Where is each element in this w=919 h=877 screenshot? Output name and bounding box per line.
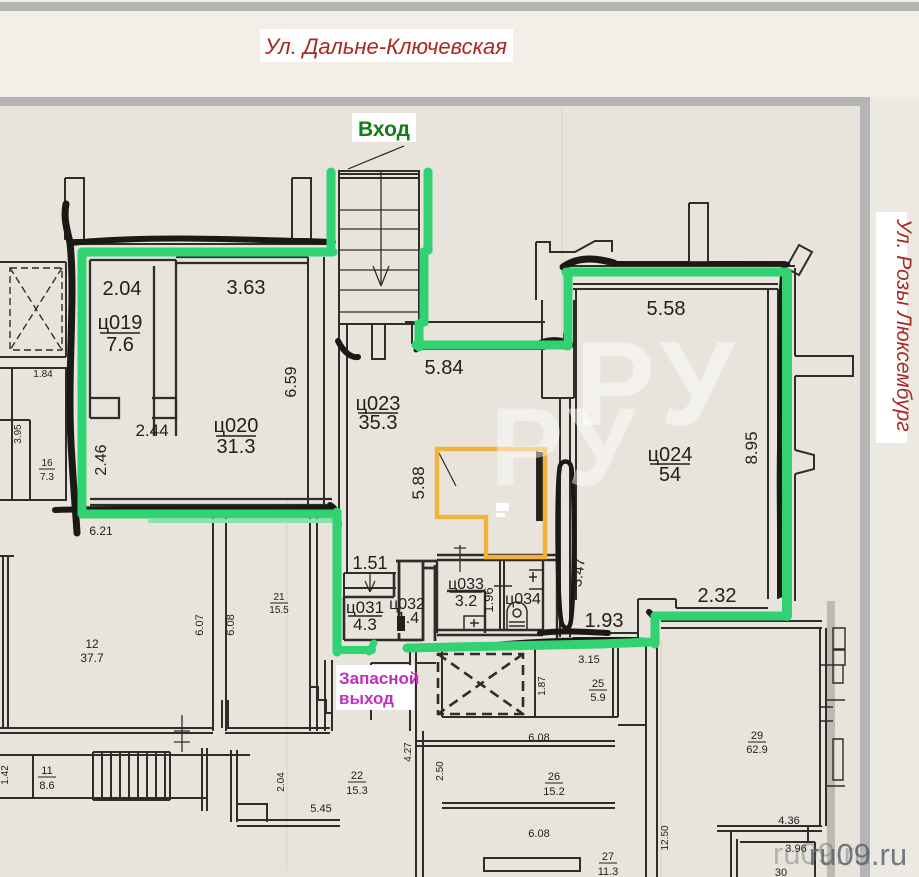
svg-text:27: 27 bbox=[602, 851, 614, 863]
svg-text:2.46: 2.46 bbox=[93, 444, 110, 475]
svg-text:2.50: 2.50 bbox=[435, 761, 446, 781]
svg-text:ц024: ц024 bbox=[648, 444, 693, 466]
svg-text:выход: выход bbox=[339, 689, 394, 708]
svg-text:8.95: 8.95 bbox=[742, 431, 761, 464]
svg-text:21: 21 bbox=[273, 592, 285, 603]
svg-text:15.2: 15.2 bbox=[543, 786, 564, 798]
svg-text:3.95: 3.95 bbox=[13, 424, 24, 444]
svg-text:7.3: 7.3 bbox=[40, 472, 54, 483]
svg-text:31.3: 31.3 bbox=[217, 436, 256, 458]
svg-text:11.3: 11.3 bbox=[598, 866, 619, 877]
svg-text:5.45: 5.45 bbox=[310, 803, 331, 815]
svg-text:1.96: 1.96 bbox=[481, 587, 496, 612]
svg-text:5.84: 5.84 bbox=[425, 357, 464, 379]
svg-text:7.6: 7.6 bbox=[106, 334, 134, 356]
svg-text:1.4: 1.4 bbox=[397, 610, 419, 627]
svg-text:6.59: 6.59 bbox=[283, 366, 300, 397]
svg-text:5.58: 5.58 bbox=[647, 298, 686, 320]
svg-text:54: 54 bbox=[659, 464, 681, 486]
svg-text:ru09.ru: ru09.ru bbox=[773, 836, 871, 871]
svg-text:15.3: 15.3 bbox=[346, 785, 367, 797]
svg-text:Ул. Дальне-Ключевская: Ул. Дальне-Ключевская bbox=[264, 34, 507, 59]
svg-text:5.9: 5.9 bbox=[590, 692, 605, 704]
svg-text:3.2: 3.2 bbox=[455, 593, 477, 610]
svg-text:15.5: 15.5 bbox=[269, 605, 289, 616]
svg-text:22: 22 bbox=[351, 770, 363, 782]
svg-text:12: 12 bbox=[85, 637, 99, 651]
svg-text:1.84: 1.84 bbox=[33, 369, 53, 380]
svg-text:2.32: 2.32 bbox=[698, 585, 737, 607]
svg-text:4.3: 4.3 bbox=[353, 615, 377, 634]
svg-text:37.7: 37.7 bbox=[80, 651, 104, 665]
svg-text:ц020: ц020 bbox=[214, 415, 259, 437]
svg-text:ц033: ц033 bbox=[448, 576, 484, 593]
svg-text:62.9: 62.9 bbox=[746, 744, 767, 756]
svg-text:4.36: 4.36 bbox=[778, 815, 799, 827]
svg-text:1.42: 1.42 bbox=[0, 765, 11, 785]
svg-text:6.08: 6.08 bbox=[528, 828, 549, 840]
svg-text:12.50: 12.50 bbox=[660, 825, 671, 850]
svg-text:2.04: 2.04 bbox=[103, 278, 142, 300]
svg-text:Вход: Вход bbox=[358, 118, 410, 141]
svg-text:8.6: 8.6 bbox=[39, 780, 54, 792]
svg-text:29: 29 bbox=[751, 730, 763, 742]
svg-text:16: 16 bbox=[41, 458, 53, 469]
svg-text:6.21: 6.21 bbox=[89, 524, 113, 538]
svg-text:4.27: 4.27 bbox=[403, 742, 414, 762]
svg-text:6.08: 6.08 bbox=[225, 614, 237, 635]
svg-text:26: 26 bbox=[548, 771, 560, 783]
svg-text:6.08: 6.08 bbox=[528, 732, 549, 744]
svg-text:6.07: 6.07 bbox=[194, 614, 206, 635]
svg-text:1.87: 1.87 bbox=[537, 676, 548, 696]
svg-text:Запасной: Запасной bbox=[339, 669, 419, 688]
svg-text:1.51: 1.51 bbox=[352, 553, 387, 573]
svg-text:1.93: 1.93 bbox=[585, 610, 624, 632]
svg-text:2.44: 2.44 bbox=[135, 421, 168, 440]
svg-text:11: 11 bbox=[41, 765, 52, 777]
svg-text:35.3: 35.3 bbox=[359, 412, 398, 434]
svg-text:2.04: 2.04 bbox=[276, 772, 287, 792]
svg-text:3.15: 3.15 bbox=[578, 654, 599, 666]
svg-text:ц019: ц019 bbox=[98, 312, 143, 334]
svg-text:3.63: 3.63 bbox=[227, 277, 266, 299]
svg-text:5.88: 5.88 bbox=[409, 466, 428, 499]
svg-text:РУ: РУ bbox=[490, 386, 640, 509]
svg-text:25: 25 bbox=[592, 678, 604, 690]
svg-text:Ул. Розы Люксембург: Ул. Розы Люксембург bbox=[892, 218, 915, 432]
